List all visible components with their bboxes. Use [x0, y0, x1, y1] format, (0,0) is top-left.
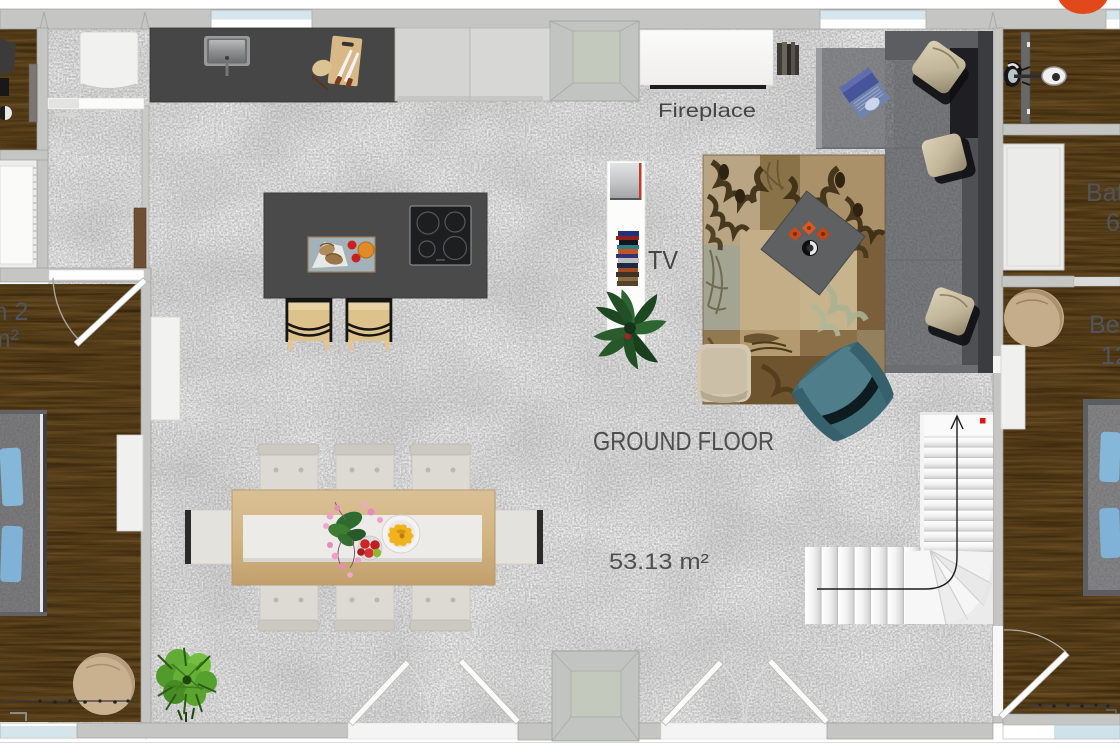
svg-text:Bathroom: Bathroom: [1086, 179, 1120, 207]
svg-text:GROUND FLOOR: GROUND FLOOR: [593, 426, 774, 456]
svg-text:12.6 m²: 12.6 m²: [1101, 342, 1120, 370]
svg-text:TV: TV: [648, 245, 679, 275]
svg-text:11.1 m²: 11.1 m²: [0, 325, 19, 353]
svg-text:Bedroom: Bedroom: [1089, 311, 1120, 339]
svg-text:6.1 m²: 6.1 m²: [1106, 209, 1120, 237]
svg-text:Fireplace: Fireplace: [658, 100, 756, 122]
svg-text:Bedroom 2: Bedroom 2: [0, 298, 28, 326]
svg-text:53.13 m²: 53.13 m²: [609, 549, 709, 574]
